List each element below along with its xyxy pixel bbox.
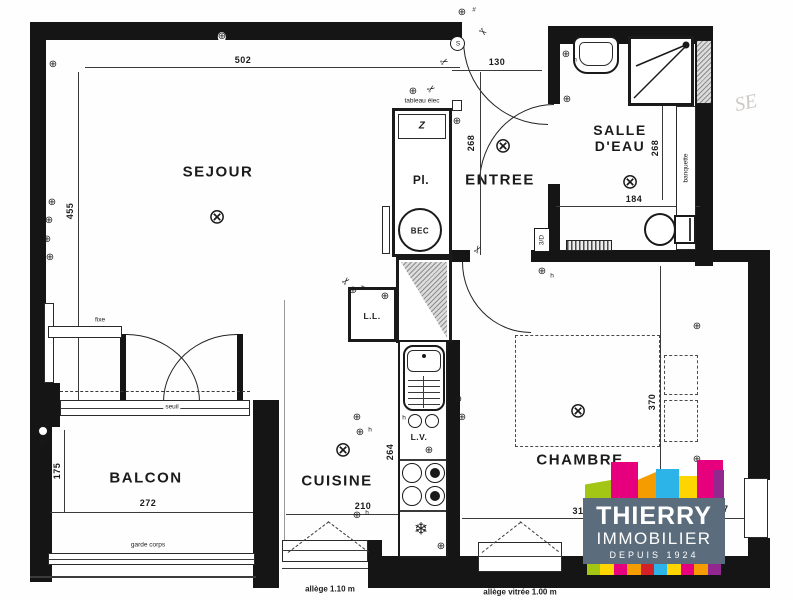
wall-wc-bottom	[531, 250, 770, 262]
window-cuisine-line	[282, 550, 368, 551]
toilet-tank-line	[689, 218, 691, 241]
water-heater-label: BEC	[411, 227, 429, 236]
wall-balcony-corner	[30, 383, 60, 427]
nightstand-outline	[664, 355, 698, 395]
doorbell-s-label: S	[456, 41, 460, 48]
h-mark: h	[368, 427, 372, 434]
french-door-leaf-right	[237, 334, 243, 404]
closet-door-leaf	[382, 206, 390, 254]
outlet-icon: ⊕	[538, 267, 546, 277]
dim-sde-height: 268	[650, 140, 660, 157]
washing-machine-label: L.L.	[363, 311, 380, 321]
outlet-icon: ⊕	[353, 511, 361, 521]
outlet-icon: ⊕	[48, 198, 56, 208]
ceiling-light-icon: ⊗	[494, 136, 512, 157]
wardrobe-outline	[664, 400, 698, 442]
dim-line-entree-height	[480, 72, 481, 255]
wall-kitchen-chambre	[446, 340, 460, 558]
drainboard-line	[408, 398, 440, 399]
dim-line-sejour-height	[78, 72, 79, 402]
toilet-bowl	[644, 213, 676, 246]
balcony-bottom-line	[30, 576, 256, 578]
guardrail-label: garde corps	[129, 542, 167, 549]
outlet-icon: ⊕	[437, 542, 445, 552]
outlet-icon: ⊕	[46, 253, 54, 263]
dim-sejour-height: 455	[65, 203, 75, 220]
dim-chambre-width-left: 31	[572, 506, 583, 516]
sd-tag: 3/D	[539, 235, 546, 245]
guardrail-line	[48, 559, 255, 560]
stripe-segment	[614, 564, 627, 575]
threshold-label: seuil	[163, 404, 180, 411]
outlet-icon: ⊕	[409, 87, 417, 97]
ceiling-light-icon: ⊗	[621, 172, 639, 193]
dim-line-sejour-width	[85, 67, 460, 68]
bedroom-door-arc	[462, 262, 531, 333]
window-right	[744, 478, 768, 538]
washbasin-bowl	[579, 42, 613, 66]
downpipe-circle	[38, 426, 48, 436]
handwritten-watermark: SE	[733, 90, 760, 117]
outlet-icon: ⊕	[356, 428, 364, 438]
dim-line-cuisine-width	[286, 514, 398, 515]
logo-building-magenta-1	[611, 462, 638, 498]
outlet-icon: ⊕	[425, 446, 433, 456]
threshold-dashed-line	[60, 391, 250, 392]
stripe-segment	[667, 564, 680, 575]
outlet-icon: ⊕	[453, 117, 461, 127]
hotplate-inner	[430, 468, 440, 478]
dim-sejour-width: 502	[235, 55, 252, 65]
knob-circle	[408, 414, 422, 428]
downpipe-label: EP	[40, 440, 49, 447]
stripe-segment	[681, 564, 694, 575]
fixed-glazing-label: fixe	[95, 317, 105, 324]
wall-chambre-right-upper	[748, 258, 770, 480]
allege-chambre-label: allège vitrée 1.00 m	[483, 588, 556, 597]
drainboard-line	[408, 392, 440, 393]
room-label-placard: Pl.	[413, 173, 429, 187]
h-mark: h	[550, 273, 554, 280]
counter-divider	[400, 459, 446, 461]
room-label-entree: ENTREE	[465, 172, 535, 189]
logo-building-purple	[713, 470, 724, 498]
counter-divider	[400, 510, 446, 512]
outlet-icon: ⊕	[381, 292, 389, 302]
outlet-icon: ⊕	[349, 286, 357, 296]
knob-circle	[425, 414, 439, 428]
dim-line-balcon-width	[50, 512, 253, 513]
junction-box	[452, 100, 462, 111]
fixed-glazing	[48, 326, 122, 338]
radiator-sejour	[44, 303, 54, 383]
wall-chambre-top-stub	[452, 250, 470, 262]
h-mark: h	[573, 57, 577, 64]
outlet-icon: ⊕	[693, 322, 701, 332]
cut-mark-icon: ✂	[426, 83, 439, 96]
stripe-segment	[654, 564, 667, 575]
dim-line-entree-width	[452, 70, 542, 71]
hotplate	[402, 463, 422, 483]
h-mark: h	[365, 510, 369, 517]
h-mark: h	[402, 415, 406, 422]
dim-entree-width: 130	[489, 57, 506, 67]
room-label-sejour: SEJOUR	[183, 164, 254, 181]
tableau-elec-label: tableau élec	[404, 98, 439, 105]
drainboard-line	[408, 380, 440, 381]
outlet-icon: ⊕	[218, 32, 226, 42]
logo-subtitle: IMMOBILIER	[583, 529, 725, 549]
stripe-segment	[627, 564, 640, 575]
cut-mark-icon: ✂	[473, 244, 486, 256]
stripe-segment	[694, 564, 707, 575]
window-cuisine	[282, 540, 368, 562]
outlet-icon: ⊕	[49, 60, 57, 70]
logo-building-cyan	[656, 469, 679, 498]
logo-color-stripe	[587, 564, 721, 575]
logo-title: THIERRY	[583, 502, 725, 531]
window-chambre	[478, 542, 562, 572]
outlet-icon: ⊕	[454, 395, 462, 405]
bed-outline	[515, 335, 660, 447]
banquette-label: banquette	[683, 154, 690, 183]
wall-kitchen-window-stub	[368, 540, 382, 588]
drainboard-line	[408, 386, 440, 387]
dim-chambre-height: 370	[647, 394, 657, 411]
cuisine-boundary-line	[284, 300, 285, 555]
wall-balcony-kitchen-pillar	[253, 400, 279, 588]
outlet-icon: ⊕	[458, 8, 466, 18]
ceiling-light-icon: ⊗	[334, 440, 352, 461]
outlet-icon: ⊕	[43, 235, 51, 245]
logo-building-yellow	[679, 476, 697, 498]
duct-hatch	[696, 40, 712, 104]
outlet-icon: ⊕	[353, 413, 361, 423]
logo-tagline: DEPUIS 1924	[583, 550, 725, 560]
outlet-icon: ⊕	[563, 95, 571, 105]
wall-top-left	[30, 22, 462, 40]
hash-mark: #	[472, 7, 476, 14]
outlet-icon: ⊕	[45, 216, 53, 226]
shower	[628, 36, 694, 106]
radiator-wc	[566, 240, 612, 251]
stripe-segment	[600, 564, 613, 575]
dishwasher-label: L.V.	[411, 432, 428, 442]
stripe-segment	[587, 564, 600, 575]
dim-sde-width: 184	[624, 194, 645, 204]
toilet-tank	[674, 215, 696, 244]
room-label-balcon: BALCON	[109, 470, 182, 487]
dim-entree-height: 268	[466, 135, 476, 152]
hotplate	[402, 486, 422, 506]
wall-bathroom-door-stub-top	[548, 44, 560, 104]
drainboard-line	[408, 404, 440, 405]
dim-balcon-width: 272	[140, 498, 157, 508]
logo-building-orange	[638, 472, 656, 498]
outlet-icon: ⊕	[562, 50, 570, 60]
stripe-segment	[708, 564, 721, 575]
window-chambre-line	[478, 556, 562, 557]
logo-building-lime	[585, 480, 611, 498]
dim-cuisine-height: 264	[385, 444, 395, 461]
kitchen-faucet	[422, 354, 426, 358]
dim-line-balcon-height	[64, 430, 65, 512]
agency-logo: THIERRY IMMOBILIER DEPUIS 1924	[583, 458, 725, 576]
dim-balcon-height: 175	[52, 463, 62, 480]
closet-shelf-symbol: Z	[419, 121, 426, 132]
logo-text-box: THIERRY IMMOBILIER DEPUIS 1924	[583, 498, 725, 564]
threshold-sill-line	[60, 408, 250, 409]
cut-mark-icon: ✂	[476, 26, 489, 39]
hotplate-inner	[430, 491, 440, 501]
fridge-icon: ❄	[414, 521, 428, 538]
outlet-icon: ⊕	[458, 413, 466, 423]
room-label-cuisine: CUISINE	[301, 473, 372, 490]
window-cuisine-sill	[282, 568, 368, 569]
drainboard-center-line	[423, 376, 424, 408]
stripe-segment	[641, 564, 654, 575]
h-mark: h	[361, 285, 365, 292]
floor-plan: SEJOUR ⊗ 502 455 ⊕ ⊕ ⊕ ⊕ ⊕ ⊕ fixe seuil …	[0, 0, 793, 600]
ceiling-light-icon: ⊗	[208, 207, 226, 228]
allege-cuisine-label: allège 1.10 m	[305, 585, 355, 594]
